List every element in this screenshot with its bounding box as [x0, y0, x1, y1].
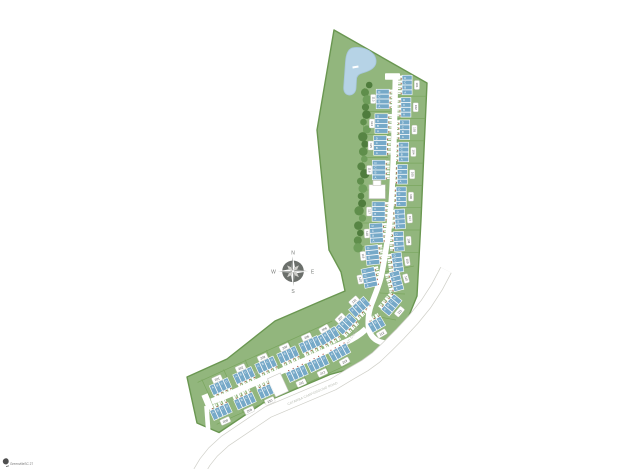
svg-text:C: C [398, 192, 400, 196]
svg-text:D: D [378, 90, 380, 94]
svg-text:A: A [400, 180, 402, 184]
svg-text:C: C [402, 125, 404, 129]
svg-text:C: C [399, 170, 401, 174]
svg-text:C: C [377, 119, 379, 123]
svg-text:114: 114 [370, 121, 374, 126]
svg-text:C: C [368, 251, 371, 255]
svg-text:A: A [374, 217, 376, 221]
svg-text:D: D [371, 224, 373, 228]
svg-text:D: D [401, 143, 403, 147]
svg-text:A: A [396, 247, 398, 251]
svg-text:C: C [403, 103, 405, 107]
svg-text:A: A [378, 104, 380, 108]
svg-text:107: 107 [408, 216, 412, 222]
svg-text:D: D [404, 76, 406, 80]
svg-text:115: 115 [369, 143, 373, 148]
svg-text:109: 109 [405, 258, 410, 264]
svg-text:116: 116 [368, 168, 372, 173]
svg-text:105: 105 [410, 172, 414, 177]
svg-text:D: D [403, 98, 405, 102]
svg-text:106: 106 [409, 194, 413, 199]
svg-text:104: 104 [412, 149, 416, 154]
svg-text:B: B [372, 234, 374, 238]
svg-text:A: A [377, 129, 379, 133]
svg-text:D: D [374, 161, 376, 165]
svg-text:D: D [395, 232, 397, 236]
svg-text:B: B [396, 242, 398, 246]
svg-text:117: 117 [367, 209, 371, 214]
svg-text:C: C [396, 237, 398, 241]
svg-text:A: A [404, 90, 406, 94]
svg-text:D: D [367, 246, 370, 250]
svg-text:C: C [401, 148, 403, 152]
svg-text:A: A [401, 157, 403, 161]
svg-text:D: D [376, 136, 378, 140]
svg-text:B: B [404, 85, 406, 89]
svg-text:119: 119 [361, 253, 366, 259]
svg-text:C: C [378, 95, 380, 99]
svg-text:D: D [402, 120, 404, 124]
svg-text:118: 118 [365, 231, 369, 236]
svg-text:B: B [402, 130, 404, 134]
svg-text:C: C [397, 215, 399, 219]
svg-text:D: D [374, 202, 376, 206]
svg-text:A: A [376, 151, 378, 155]
svg-text:B: B [378, 99, 380, 103]
svg-text:GreenvilleSC 27: GreenvilleSC 27 [10, 462, 33, 466]
svg-text:B: B [400, 175, 402, 179]
svg-text:101: 101 [415, 82, 419, 87]
svg-text:D: D [397, 210, 399, 214]
svg-text:A: A [372, 238, 374, 242]
svg-text:113: 113 [371, 97, 375, 102]
svg-text:103: 103 [413, 127, 417, 132]
svg-text:N: N [291, 251, 295, 257]
svg-text:108: 108 [407, 238, 411, 244]
svg-text:C: C [404, 81, 406, 85]
svg-text:A: A [397, 224, 399, 228]
svg-text:C: C [374, 207, 376, 211]
svg-text:D: D [398, 187, 400, 191]
svg-text:B: B [398, 197, 400, 201]
svg-text:B: B [401, 152, 403, 156]
svg-text:C: C [374, 166, 376, 170]
svg-text:C: C [372, 229, 374, 233]
svg-text:A: A [398, 202, 400, 206]
svg-text:C: C [376, 141, 378, 145]
svg-text:B: B [377, 124, 379, 128]
svg-text:A: A [403, 113, 405, 117]
svg-text:A: A [375, 175, 377, 179]
svg-text:B: B [397, 220, 399, 224]
svg-text:102: 102 [414, 105, 418, 110]
svg-text:B: B [375, 170, 377, 174]
svg-text:W: W [271, 269, 276, 275]
svg-text:D: D [399, 165, 401, 169]
svg-text:D: D [377, 114, 379, 118]
svg-text:A: A [402, 135, 404, 139]
svg-text:B: B [376, 146, 378, 150]
svg-text:B: B [403, 108, 405, 112]
svg-text:B: B [374, 212, 376, 216]
